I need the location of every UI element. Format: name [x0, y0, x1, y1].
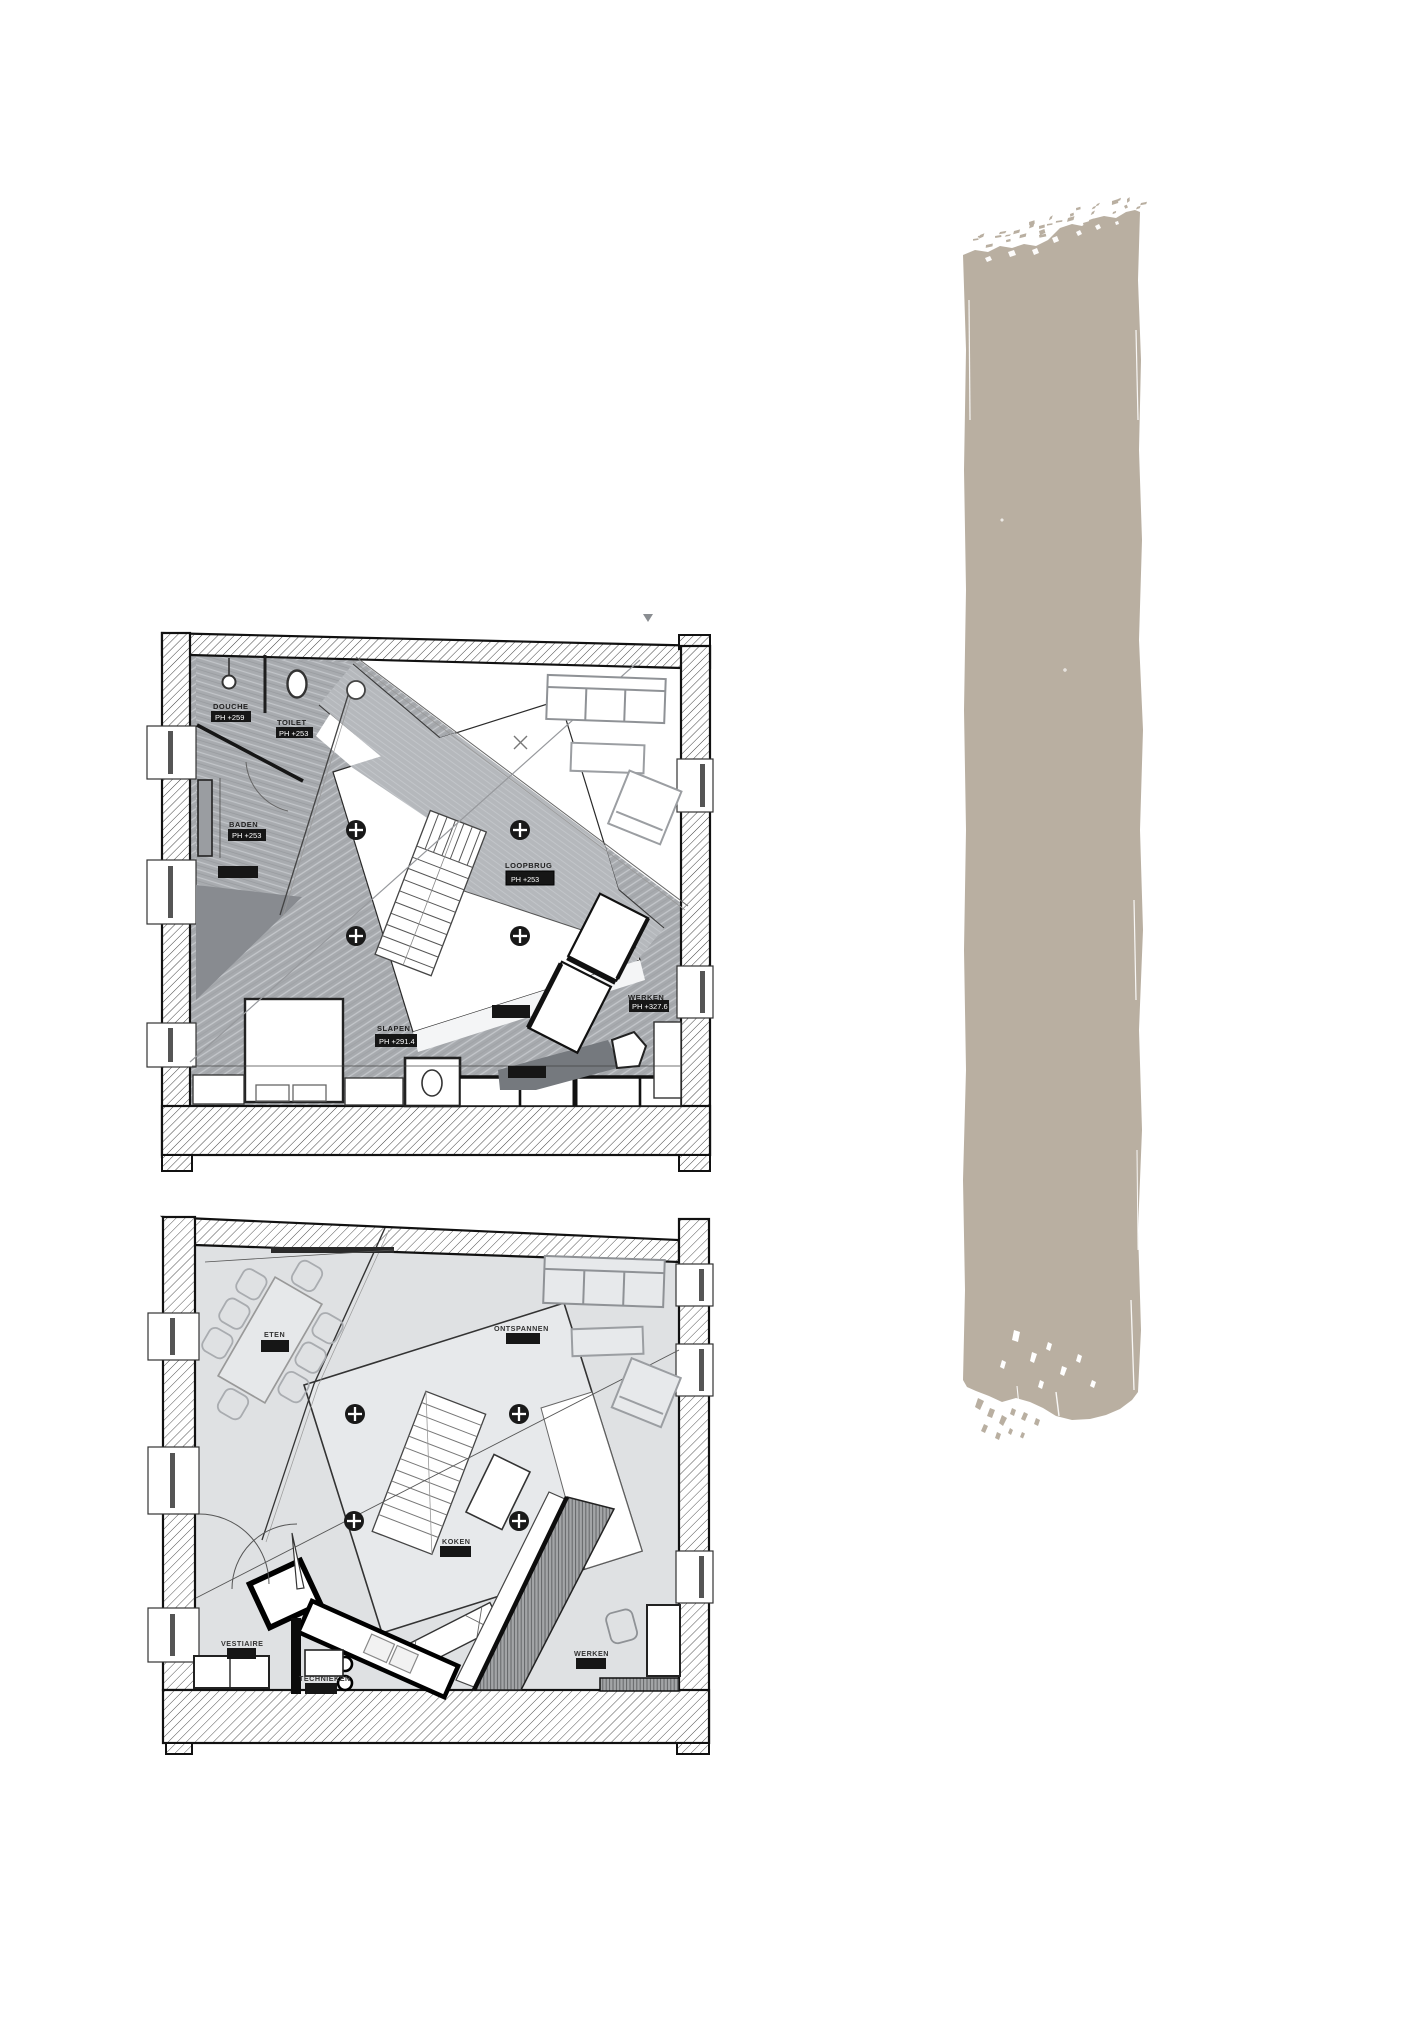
- svg-text:PH +253: PH +253: [279, 729, 308, 738]
- svg-text:PH +259: PH +259: [215, 713, 244, 722]
- svg-text:PH +291.4: PH +291.4: [379, 1037, 415, 1046]
- svg-text:PH +327.6: PH +327.6: [632, 1002, 668, 1011]
- svg-text:TECHNIEKEN: TECHNIEKEN: [299, 1674, 351, 1683]
- svg-text:DOUCHE: DOUCHE: [213, 702, 249, 711]
- svg-text:TOILET: TOILET: [277, 718, 307, 727]
- svg-text:PH +253: PH +253: [511, 875, 539, 884]
- svg-text:ETEN: ETEN: [264, 1330, 285, 1339]
- svg-text:PH +253: PH +253: [232, 831, 261, 840]
- svg-text:WERKEN: WERKEN: [574, 1649, 609, 1658]
- svg-text:BADEN: BADEN: [229, 820, 258, 829]
- svg-text:LOOPBRUG: LOOPBRUG: [505, 861, 552, 870]
- svg-text:ONTSPANNEN: ONTSPANNEN: [494, 1324, 549, 1333]
- svg-text:SLAPEN: SLAPEN: [377, 1024, 410, 1033]
- svg-text:VESTIAIRE: VESTIAIRE: [221, 1639, 263, 1648]
- svg-text:KOKEN: KOKEN: [442, 1537, 470, 1546]
